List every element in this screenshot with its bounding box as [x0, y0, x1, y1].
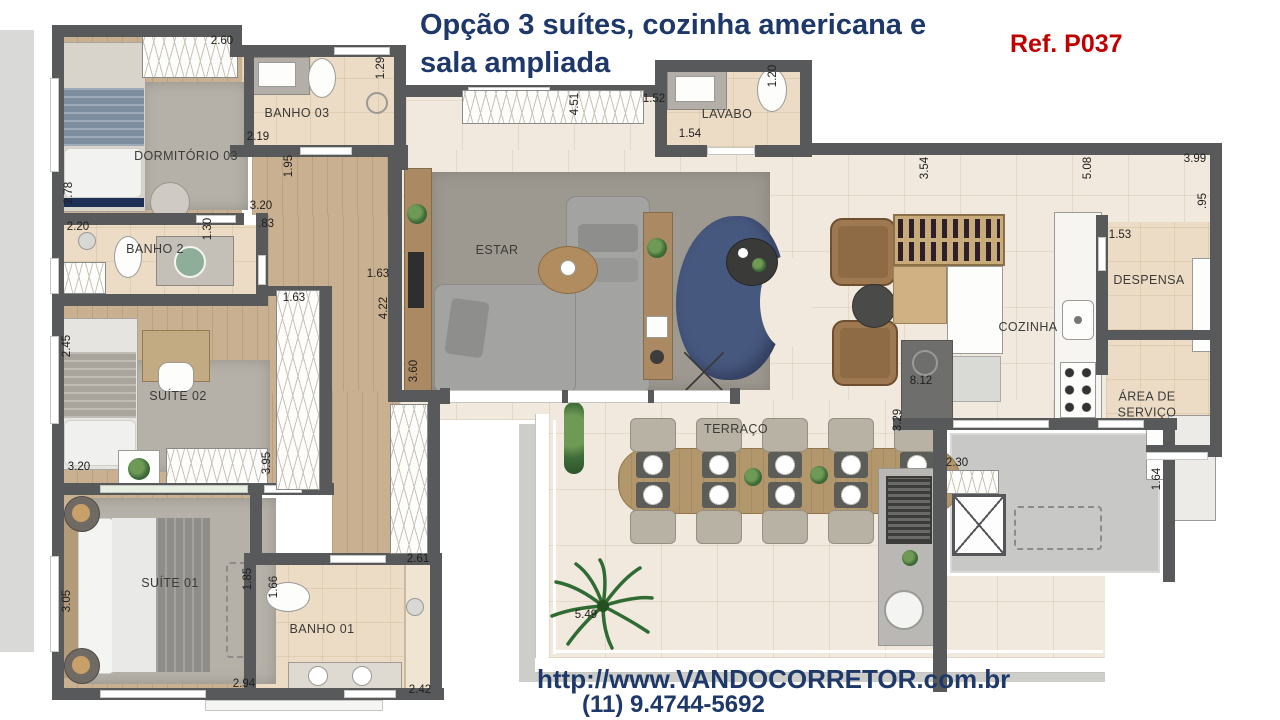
floor-plan: DORMITÓRIO 03BANHO 03BANHO 2SUÍTE 02SUÍT…: [0, 0, 1280, 720]
dimension-label: 2.61: [407, 553, 429, 565]
dimension-label: 1.63: [283, 292, 305, 304]
room-label: ÁREA DE SERVIÇO: [1118, 389, 1177, 420]
dimension-label: 3.20: [250, 200, 272, 212]
dimension-label: 5.08: [1082, 157, 1094, 179]
dimension-label: 3.05: [61, 590, 73, 612]
room-label: SUÍTE 02: [149, 389, 206, 405]
dimension-label: 1.64: [1151, 468, 1163, 490]
floorplan-page: DORMITÓRIO 03BANHO 03BANHO 2SUÍTE 02SUÍT…: [0, 0, 1280, 720]
dimension-label: 2.78: [63, 182, 75, 204]
room-label: LAVABO: [702, 107, 753, 123]
dimension-label: 8.12: [910, 375, 932, 387]
dimension-label: 3.29: [892, 409, 904, 431]
plan-reference: Ref. P037: [1010, 30, 1123, 59]
dimension-label: 2.20: [67, 221, 89, 233]
dimension-label: 1.85: [242, 568, 254, 590]
room-label: TERRAÇO: [704, 422, 768, 438]
dimension-label: 4.22: [378, 297, 390, 319]
dimension-label: 5.49: [575, 609, 597, 621]
dimension-label: 1.29: [375, 57, 387, 79]
dimension-label: 3.99: [1184, 153, 1206, 165]
dimension-label: .83: [258, 218, 274, 230]
dimension-label: 3.60: [408, 360, 420, 382]
dimension-label: 3.95: [261, 452, 273, 474]
dimension-label: 3.20: [68, 461, 90, 473]
dimension-label: 2.19: [247, 131, 269, 143]
dimension-label: 3.54: [919, 157, 931, 179]
room-label: ESTAR: [476, 243, 519, 259]
dimension-label: 1.66: [268, 576, 280, 598]
dimension-label: 2.45: [61, 335, 73, 357]
room-label: DESPENSA: [1113, 273, 1184, 289]
dimension-label: 1.54: [679, 128, 701, 140]
room-label: SUÍTE 01: [141, 576, 198, 592]
dimension-label: .95: [1197, 193, 1209, 209]
dimension-label: 2.94: [233, 678, 255, 690]
dimension-label: 1.63: [367, 268, 389, 280]
room-label: BANHO 2: [126, 242, 184, 258]
dimension-label: 1.95: [283, 155, 295, 177]
dimension-label: 1.53: [1109, 229, 1131, 241]
dimension-label: 4.51: [569, 93, 581, 115]
dimension-label: 2.60: [211, 35, 233, 47]
dimension-label: 1.30: [202, 218, 214, 240]
footer-phone: (11) 9.4744-5692: [582, 691, 765, 719]
plan-title: Opção 3 suítes, cozinha americana e sala…: [420, 6, 926, 83]
dimension-label: 2.30: [946, 457, 968, 469]
dimension-label: 2.42: [409, 684, 431, 696]
room-label: DORMITÓRIO 03: [134, 149, 238, 165]
room-label: BANHO 01: [289, 622, 354, 638]
room-label: COZINHA: [998, 320, 1057, 336]
labels-layer: DORMITÓRIO 03BANHO 03BANHO 2SUÍTE 02SUÍT…: [0, 0, 1280, 720]
room-label: BANHO 03: [264, 106, 329, 122]
dimension-label: 1.52: [643, 93, 665, 105]
